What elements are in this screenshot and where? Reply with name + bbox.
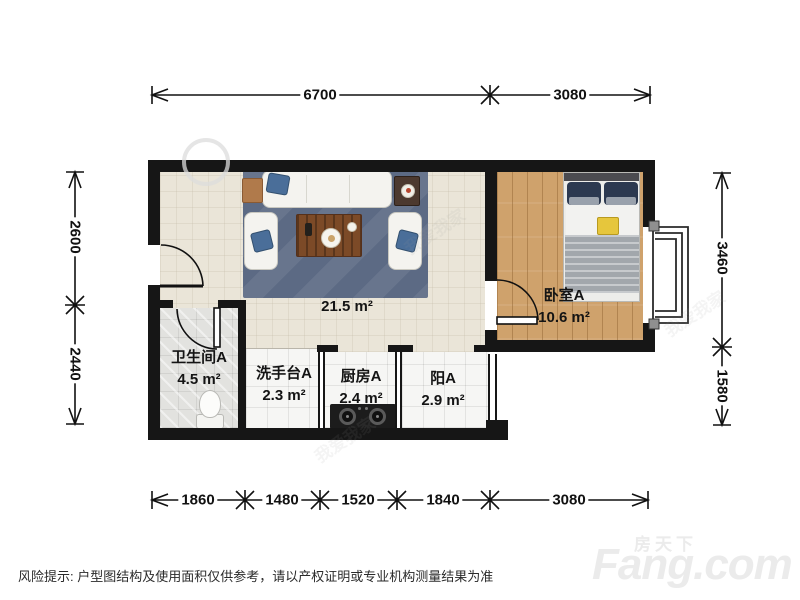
dimension-lines bbox=[65, 85, 732, 510]
balcony-label: 阳A 2.9 m² bbox=[421, 368, 464, 412]
dim-bottom-2: 1480 bbox=[262, 492, 301, 509]
bathroom-name: 卫生间A bbox=[171, 347, 227, 369]
bathroom-area: 4.5 m² bbox=[171, 369, 227, 391]
agency-watermark-icon bbox=[182, 138, 230, 186]
dim-top-2: 3080 bbox=[550, 87, 589, 104]
kitchen-name: 厨房A bbox=[339, 366, 382, 388]
bedroom-label: 卧室A 10.6 m² bbox=[538, 285, 590, 329]
washstand-label: 洗手台A 2.3 m² bbox=[256, 363, 312, 407]
dim-bottom-1: 1860 bbox=[178, 492, 217, 509]
balcony-area: 2.9 m² bbox=[421, 390, 464, 412]
washstand-area: 2.3 m² bbox=[256, 385, 312, 407]
bedroom-name: 卧室A bbox=[538, 285, 590, 307]
risk-disclaimer: 风险提示: 户型图结构及使用面积仅供参考，请以产权证明或专业机构测量结果为准 bbox=[18, 566, 493, 585]
living-room-label: 21.5 m² bbox=[321, 296, 373, 318]
entry-door bbox=[160, 245, 203, 286]
washstand-name: 洗手台A bbox=[256, 363, 312, 385]
dim-top-1: 6700 bbox=[300, 87, 339, 104]
annotation-overlay bbox=[0, 0, 800, 600]
balcony-name: 阳A bbox=[421, 368, 464, 390]
dim-bottom-3: 1520 bbox=[338, 492, 377, 509]
bathroom-label: 卫生间A 4.5 m² bbox=[171, 347, 227, 391]
bathroom-door bbox=[177, 308, 220, 349]
dim-left-2: 2440 bbox=[67, 344, 84, 383]
kitchen-area: 2.4 m² bbox=[339, 388, 382, 410]
dim-bottom-4: 1840 bbox=[423, 492, 462, 509]
kitchen-label: 厨房A 2.4 m² bbox=[339, 366, 382, 410]
dim-right-2: 1580 bbox=[714, 366, 731, 405]
floorplan-page: 6700 3080 1860 1480 1520 1840 3080 2600 … bbox=[0, 0, 800, 600]
living-room-area: 21.5 m² bbox=[321, 296, 373, 318]
bedroom-door bbox=[497, 280, 538, 324]
dim-right-1: 3460 bbox=[714, 238, 731, 277]
bedroom-area: 10.6 m² bbox=[538, 307, 590, 329]
dim-bottom-5: 3080 bbox=[549, 492, 588, 509]
dim-left-1: 2600 bbox=[67, 217, 84, 256]
